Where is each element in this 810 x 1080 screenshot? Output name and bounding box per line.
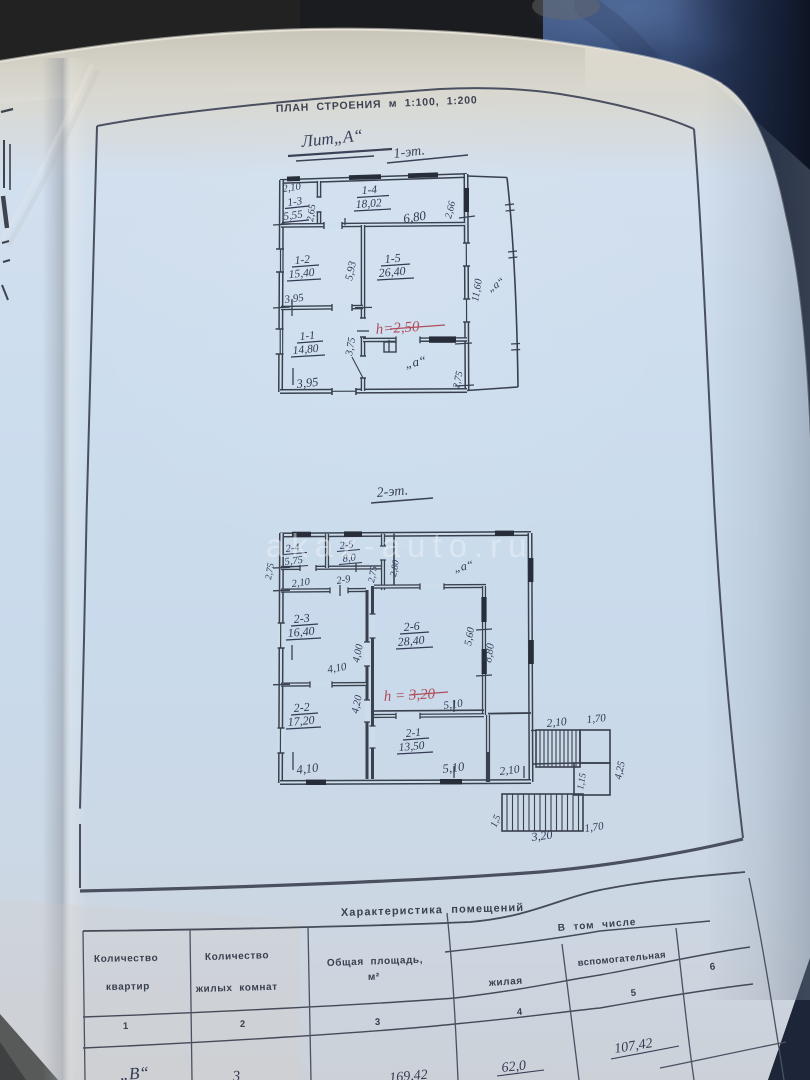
svg-text:3,20: 3,20 [530,828,554,845]
svg-text:1-1: 1-1 [299,330,315,343]
svg-text:м²: м² [368,972,380,983]
svg-text:4,10: 4,10 [296,760,320,777]
svg-text:2-эт.: 2-эт. [376,483,409,501]
svg-text:2,10: 2,10 [291,577,311,590]
svg-text:аkaz-auto.ru: аkaz-auto.ru [266,527,533,564]
svg-text:„В“: „В“ [119,1063,150,1080]
svg-text:5,10: 5,10 [442,759,466,776]
svg-text:3: 3 [231,1069,241,1080]
svg-text:13,50: 13,50 [398,740,425,754]
svg-text:2-9: 2-9 [336,574,352,587]
svg-text:14,80: 14,80 [292,343,319,357]
svg-text:15,40: 15,40 [288,267,315,281]
svg-text:3: 3 [375,1017,381,1028]
svg-text:1,70: 1,70 [586,712,607,726]
svg-text:28,40: 28,40 [397,633,425,649]
svg-text:2-1: 2-1 [405,727,421,740]
svg-text:1-4: 1-4 [361,184,377,197]
svg-text:квартир: квартир [106,981,150,993]
svg-text:2,10: 2,10 [546,716,568,730]
svg-text:2,10: 2,10 [499,764,521,778]
svg-text:1-2: 1-2 [294,254,311,267]
svg-text:2: 2 [240,1019,246,1030]
svg-text:17,20: 17,20 [287,713,315,729]
svg-text:Количество: Количество [94,953,158,965]
svg-text:3,95: 3,95 [283,292,305,306]
svg-text:Количество: Количество [205,950,270,963]
svg-text:18,02: 18,02 [355,197,382,211]
svg-text:3,95: 3,95 [295,375,319,391]
svg-text:h = 3,20: h = 3,20 [383,686,436,705]
svg-text:2-6: 2-6 [403,619,420,634]
svg-text:16,40: 16,40 [287,624,315,640]
svg-text:26,40: 26,40 [378,264,406,280]
svg-text:жилых комнат: жилых комнат [195,982,278,995]
